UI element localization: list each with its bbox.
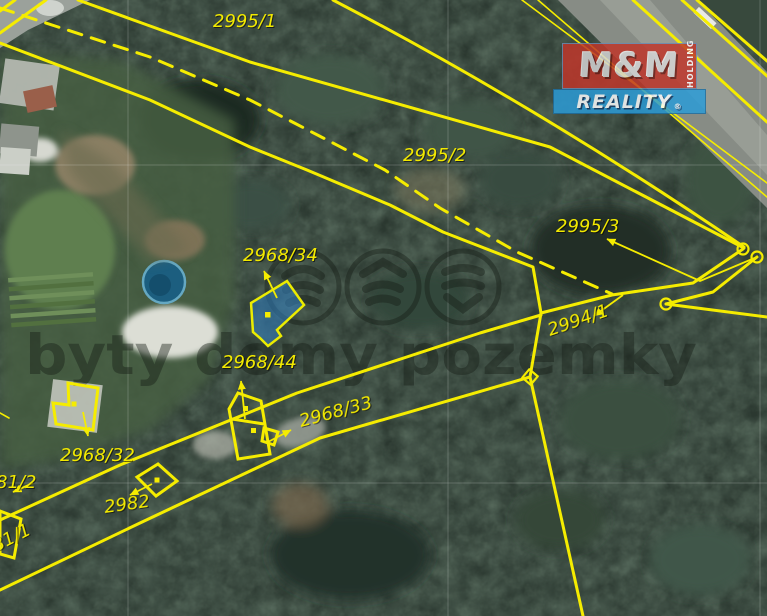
parcel-label-2968-32: 2968/32	[60, 445, 135, 466]
parcel-label-81-2: 81/2	[0, 472, 36, 493]
parcel-label-2995-3: 2995/3	[556, 216, 619, 237]
logo-reality-text: REALITY	[576, 91, 671, 113]
parcel-label-2995-2: 2995/2	[403, 145, 466, 166]
mm-reality-logo: M&M HOLDING REALITY ®	[553, 43, 706, 114]
parcel-point	[265, 312, 271, 318]
logo-registered-mark: ®	[674, 102, 683, 111]
logo-blue-bar: REALITY ®	[553, 89, 706, 114]
cadastral-map-screenshot: byty domy pozemky	[0, 0, 767, 616]
parcel-label-2995-1: 2995/1	[213, 11, 276, 32]
parcel-label-2968-34: 2968/34	[243, 245, 318, 266]
parcel-label-2968-44: 2968/44	[222, 352, 297, 373]
logo-red-box: M&M HOLDING	[562, 43, 697, 89]
logo-mm-text: M&M	[578, 46, 681, 86]
watermark-text: byty domy pozemky	[25, 323, 697, 387]
pool	[143, 261, 185, 303]
logo-holding-text: HOLDING	[686, 44, 695, 88]
